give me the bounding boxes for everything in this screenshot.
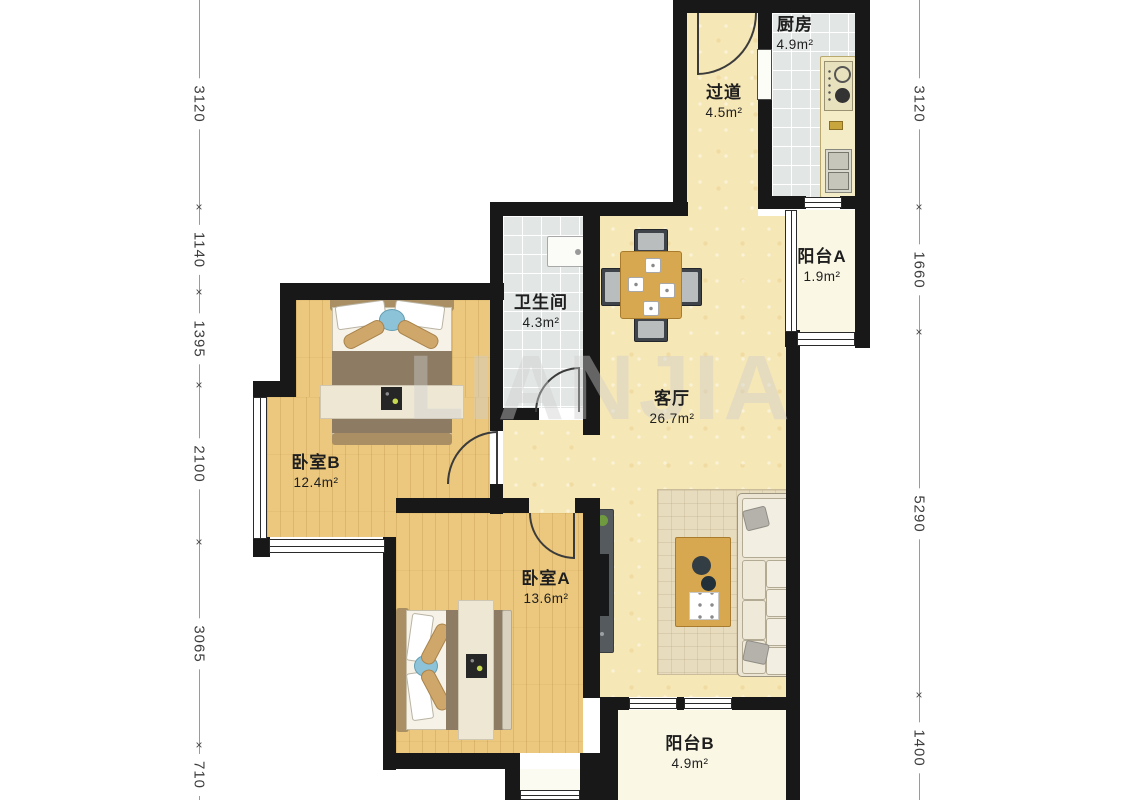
room-label-balcony-b: 阳台B 4.9m² (665, 733, 714, 773)
dimension-tick: × (915, 201, 922, 213)
wall (575, 498, 600, 513)
room-name: 客厅 (649, 388, 694, 410)
bed-bedroom-a (396, 606, 514, 734)
bed-tray-device (381, 387, 402, 410)
dimension-tick: × (195, 739, 202, 751)
dimension-label: 3065 (188, 618, 211, 669)
bed-tray-device (466, 654, 487, 678)
wall (280, 283, 504, 300)
wall (253, 537, 270, 557)
dimension-label: 3120 (188, 78, 211, 129)
wall (505, 769, 520, 800)
stove-knobs (828, 68, 831, 104)
room-name: 厨房 (776, 14, 813, 36)
chair-seat (681, 272, 698, 302)
wall (503, 408, 539, 420)
wall (383, 537, 396, 770)
room-name: 过道 (705, 82, 742, 104)
wall (758, 196, 806, 209)
stove-burner (835, 88, 850, 103)
room-label-bedroom-a: 卧室A 13.6m² (521, 568, 570, 608)
room-label-hallway: 过道 4.5m² (705, 82, 742, 122)
decor-vase (701, 576, 716, 591)
room-area: 4.3m² (514, 314, 568, 332)
room-label-living-room: 客厅 26.7m² (649, 388, 694, 428)
room-name: 卧室A (521, 568, 570, 590)
sofa-seat-cushion (742, 600, 766, 640)
window (785, 210, 797, 332)
sink-basin (828, 152, 849, 170)
room-area: 1.9m² (797, 268, 846, 286)
bed-footboard (332, 433, 452, 445)
room-area: 12.4m² (291, 474, 340, 492)
wall (786, 697, 800, 800)
cabinet-knob (600, 632, 604, 636)
room-area: 4.9m² (665, 755, 714, 773)
kitchen-counter (820, 56, 856, 198)
window (804, 197, 842, 208)
sink-basin (828, 172, 849, 190)
washing-machine (547, 236, 585, 267)
dimension-tick: × (915, 326, 922, 338)
wall (580, 769, 600, 800)
wall (758, 100, 772, 197)
dimension-tick: × (195, 201, 202, 213)
room-label-bathroom: 卫生间 4.3m² (514, 292, 568, 332)
sofa-seat-cushion (742, 560, 766, 600)
wall (786, 344, 800, 698)
bed-footboard (502, 610, 512, 730)
wall (673, 0, 870, 13)
dimension-label: 5290 (908, 488, 931, 539)
dimension-label: 1400 (908, 722, 931, 773)
wall (732, 697, 786, 710)
window (629, 698, 677, 709)
stove-burner (834, 66, 851, 83)
wall (383, 753, 520, 769)
wall (580, 753, 600, 769)
kitchen-door-leaf (757, 49, 772, 100)
wall (583, 513, 600, 698)
dimension-label: 710 (188, 754, 211, 796)
room-name: 阳台A (797, 246, 846, 268)
window (269, 539, 385, 553)
window (797, 332, 855, 346)
dimension-label: 1660 (908, 244, 931, 295)
wall (618, 697, 629, 710)
tray (689, 592, 719, 620)
dimension-label: 1395 (188, 313, 211, 364)
place-setting (645, 258, 661, 273)
room-area: 13.6m² (521, 590, 570, 608)
room-name: 阳台B (665, 733, 714, 755)
sofa (737, 493, 791, 677)
kitchen-sink (825, 149, 852, 193)
room-name: 卫生间 (514, 292, 568, 314)
wall (677, 697, 684, 710)
room-label-kitchen: 厨房 4.9m² (776, 14, 813, 54)
floorplan-canvas: 厨房 4.9m² 过道 4.5m² 阳台A 1.9m² 卫生间 4.3m² 客厅… (0, 0, 1125, 800)
wall (758, 13, 772, 49)
wall (490, 202, 503, 431)
wall (396, 498, 529, 513)
dimension-tick: × (915, 689, 922, 701)
room-area: 26.7m² (649, 410, 694, 428)
dimension-label: 2100 (188, 438, 211, 489)
place-setting (628, 277, 644, 292)
wall (673, 0, 687, 204)
room-name: 卧室B (291, 452, 340, 474)
wall (855, 0, 870, 348)
place-setting (643, 301, 659, 316)
dining-chair (634, 317, 668, 342)
wall (840, 196, 855, 209)
wall (583, 202, 600, 435)
place-setting (659, 283, 675, 298)
wall (600, 697, 618, 800)
chair-seat (638, 233, 664, 250)
cutting-board (829, 121, 843, 130)
room-label-bedroom-b: 卧室B 12.4m² (291, 452, 340, 492)
dimension-label: 1140 (188, 225, 211, 275)
chair-seat (638, 321, 664, 338)
room-label-balcony-a: 阳台A 1.9m² (797, 246, 846, 286)
bed-bedroom-b (328, 297, 456, 449)
window (520, 790, 580, 800)
coffee-table (675, 537, 731, 627)
stove-icon (824, 61, 853, 111)
room-area: 4.9m² (776, 36, 813, 54)
dimension-tick: × (195, 286, 202, 298)
window (253, 397, 267, 539)
washer-dial (575, 249, 581, 255)
wall (280, 283, 296, 397)
window (684, 698, 732, 709)
dimension-tick: × (195, 536, 202, 548)
dimension-tick: × (195, 379, 202, 391)
wall (253, 381, 296, 397)
decor-vase (692, 556, 711, 575)
room-area: 4.5m² (705, 104, 742, 122)
dining-table (620, 251, 682, 319)
dimension-label: 3120 (908, 78, 931, 129)
